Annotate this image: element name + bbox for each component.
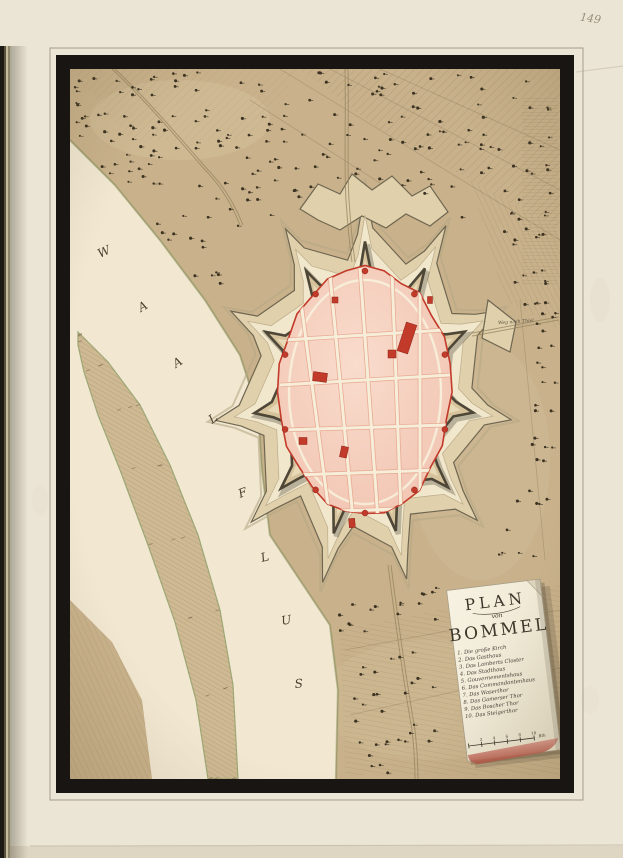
plate-vignette xyxy=(70,69,560,779)
book-gutter-edge xyxy=(0,46,28,858)
book-page-photo: 149 xyxy=(0,0,623,858)
paper-bottom-edge xyxy=(0,846,623,858)
map-scan: 149 xyxy=(0,0,623,858)
map-interior: W A A L F L U S Weg nach Thiel PLAN von … xyxy=(70,69,571,779)
